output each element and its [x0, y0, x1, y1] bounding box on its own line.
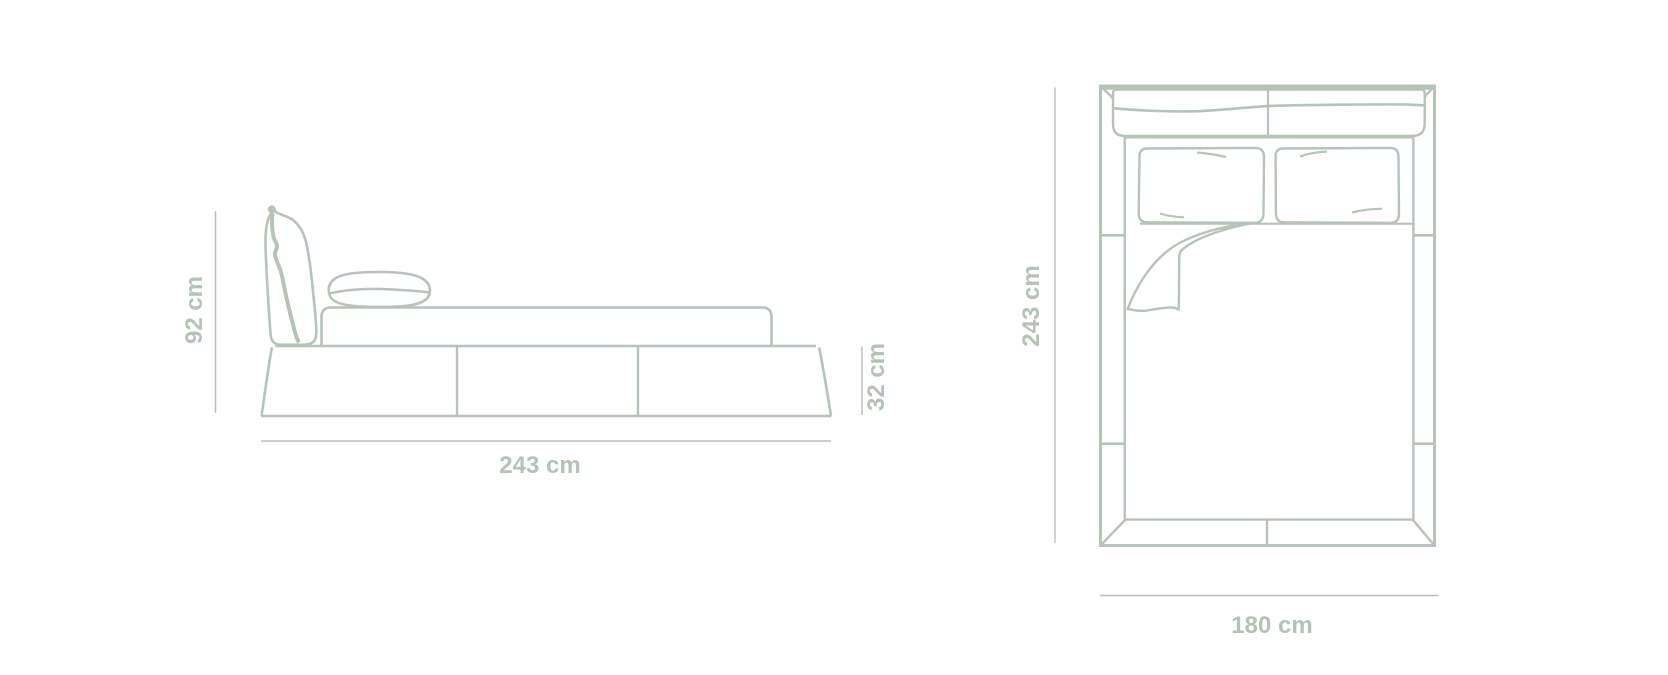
svg-text:32 cm: 32 cm	[863, 343, 890, 411]
svg-text:243 cm: 243 cm	[1018, 265, 1045, 346]
svg-text:180 cm: 180 cm	[1231, 612, 1312, 639]
svg-text:243 cm: 243 cm	[499, 452, 580, 479]
svg-text:92 cm: 92 cm	[181, 276, 208, 344]
